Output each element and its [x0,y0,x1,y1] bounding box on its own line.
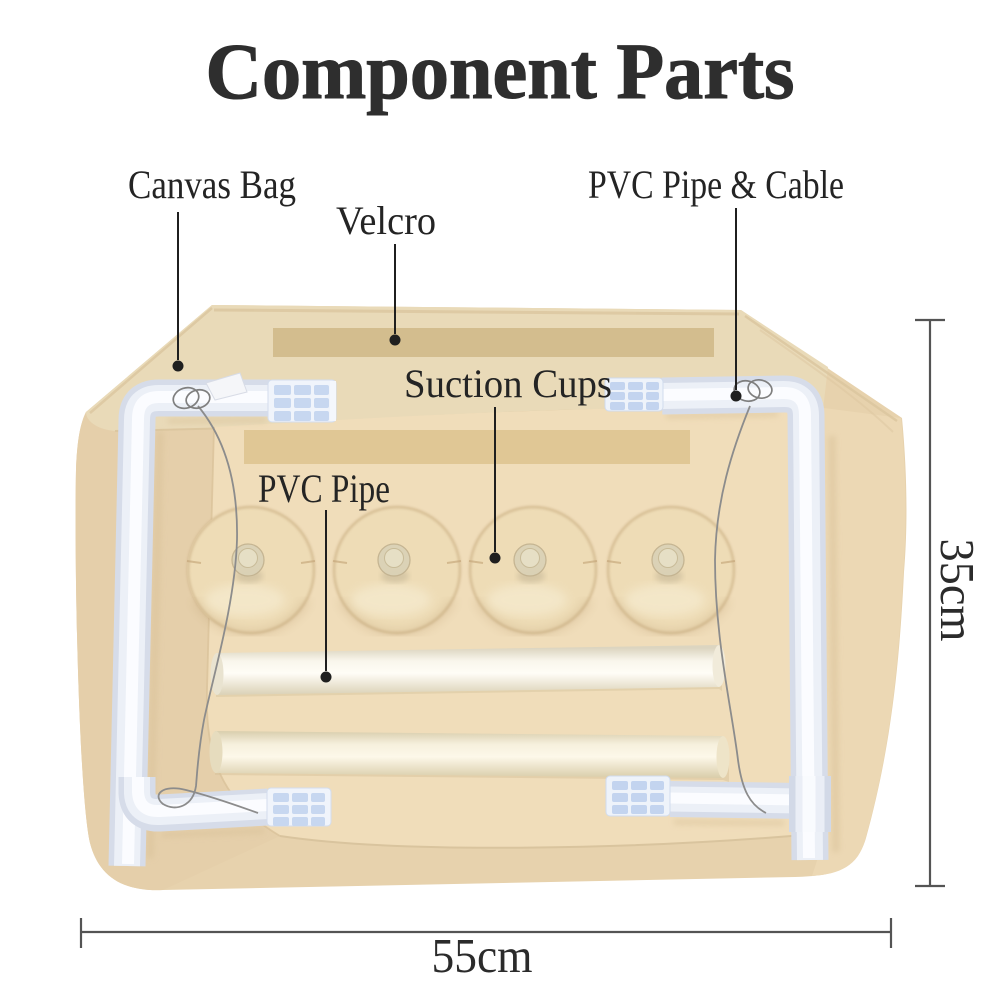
svg-text:PVC Pipe: PVC Pipe [258,466,390,511]
svg-text:Velcro: Velcro [336,198,436,243]
svg-text:55cm: 55cm [432,928,533,983]
svg-text:Canvas Bag: Canvas Bag [128,162,296,207]
svg-text:Component Parts: Component Parts [206,29,795,116]
svg-text:35cm: 35cm [930,539,985,642]
svg-text:PVC Pipe & Cable: PVC Pipe & Cable [588,162,844,207]
svg-text:Suction Cups: Suction Cups [404,361,612,406]
